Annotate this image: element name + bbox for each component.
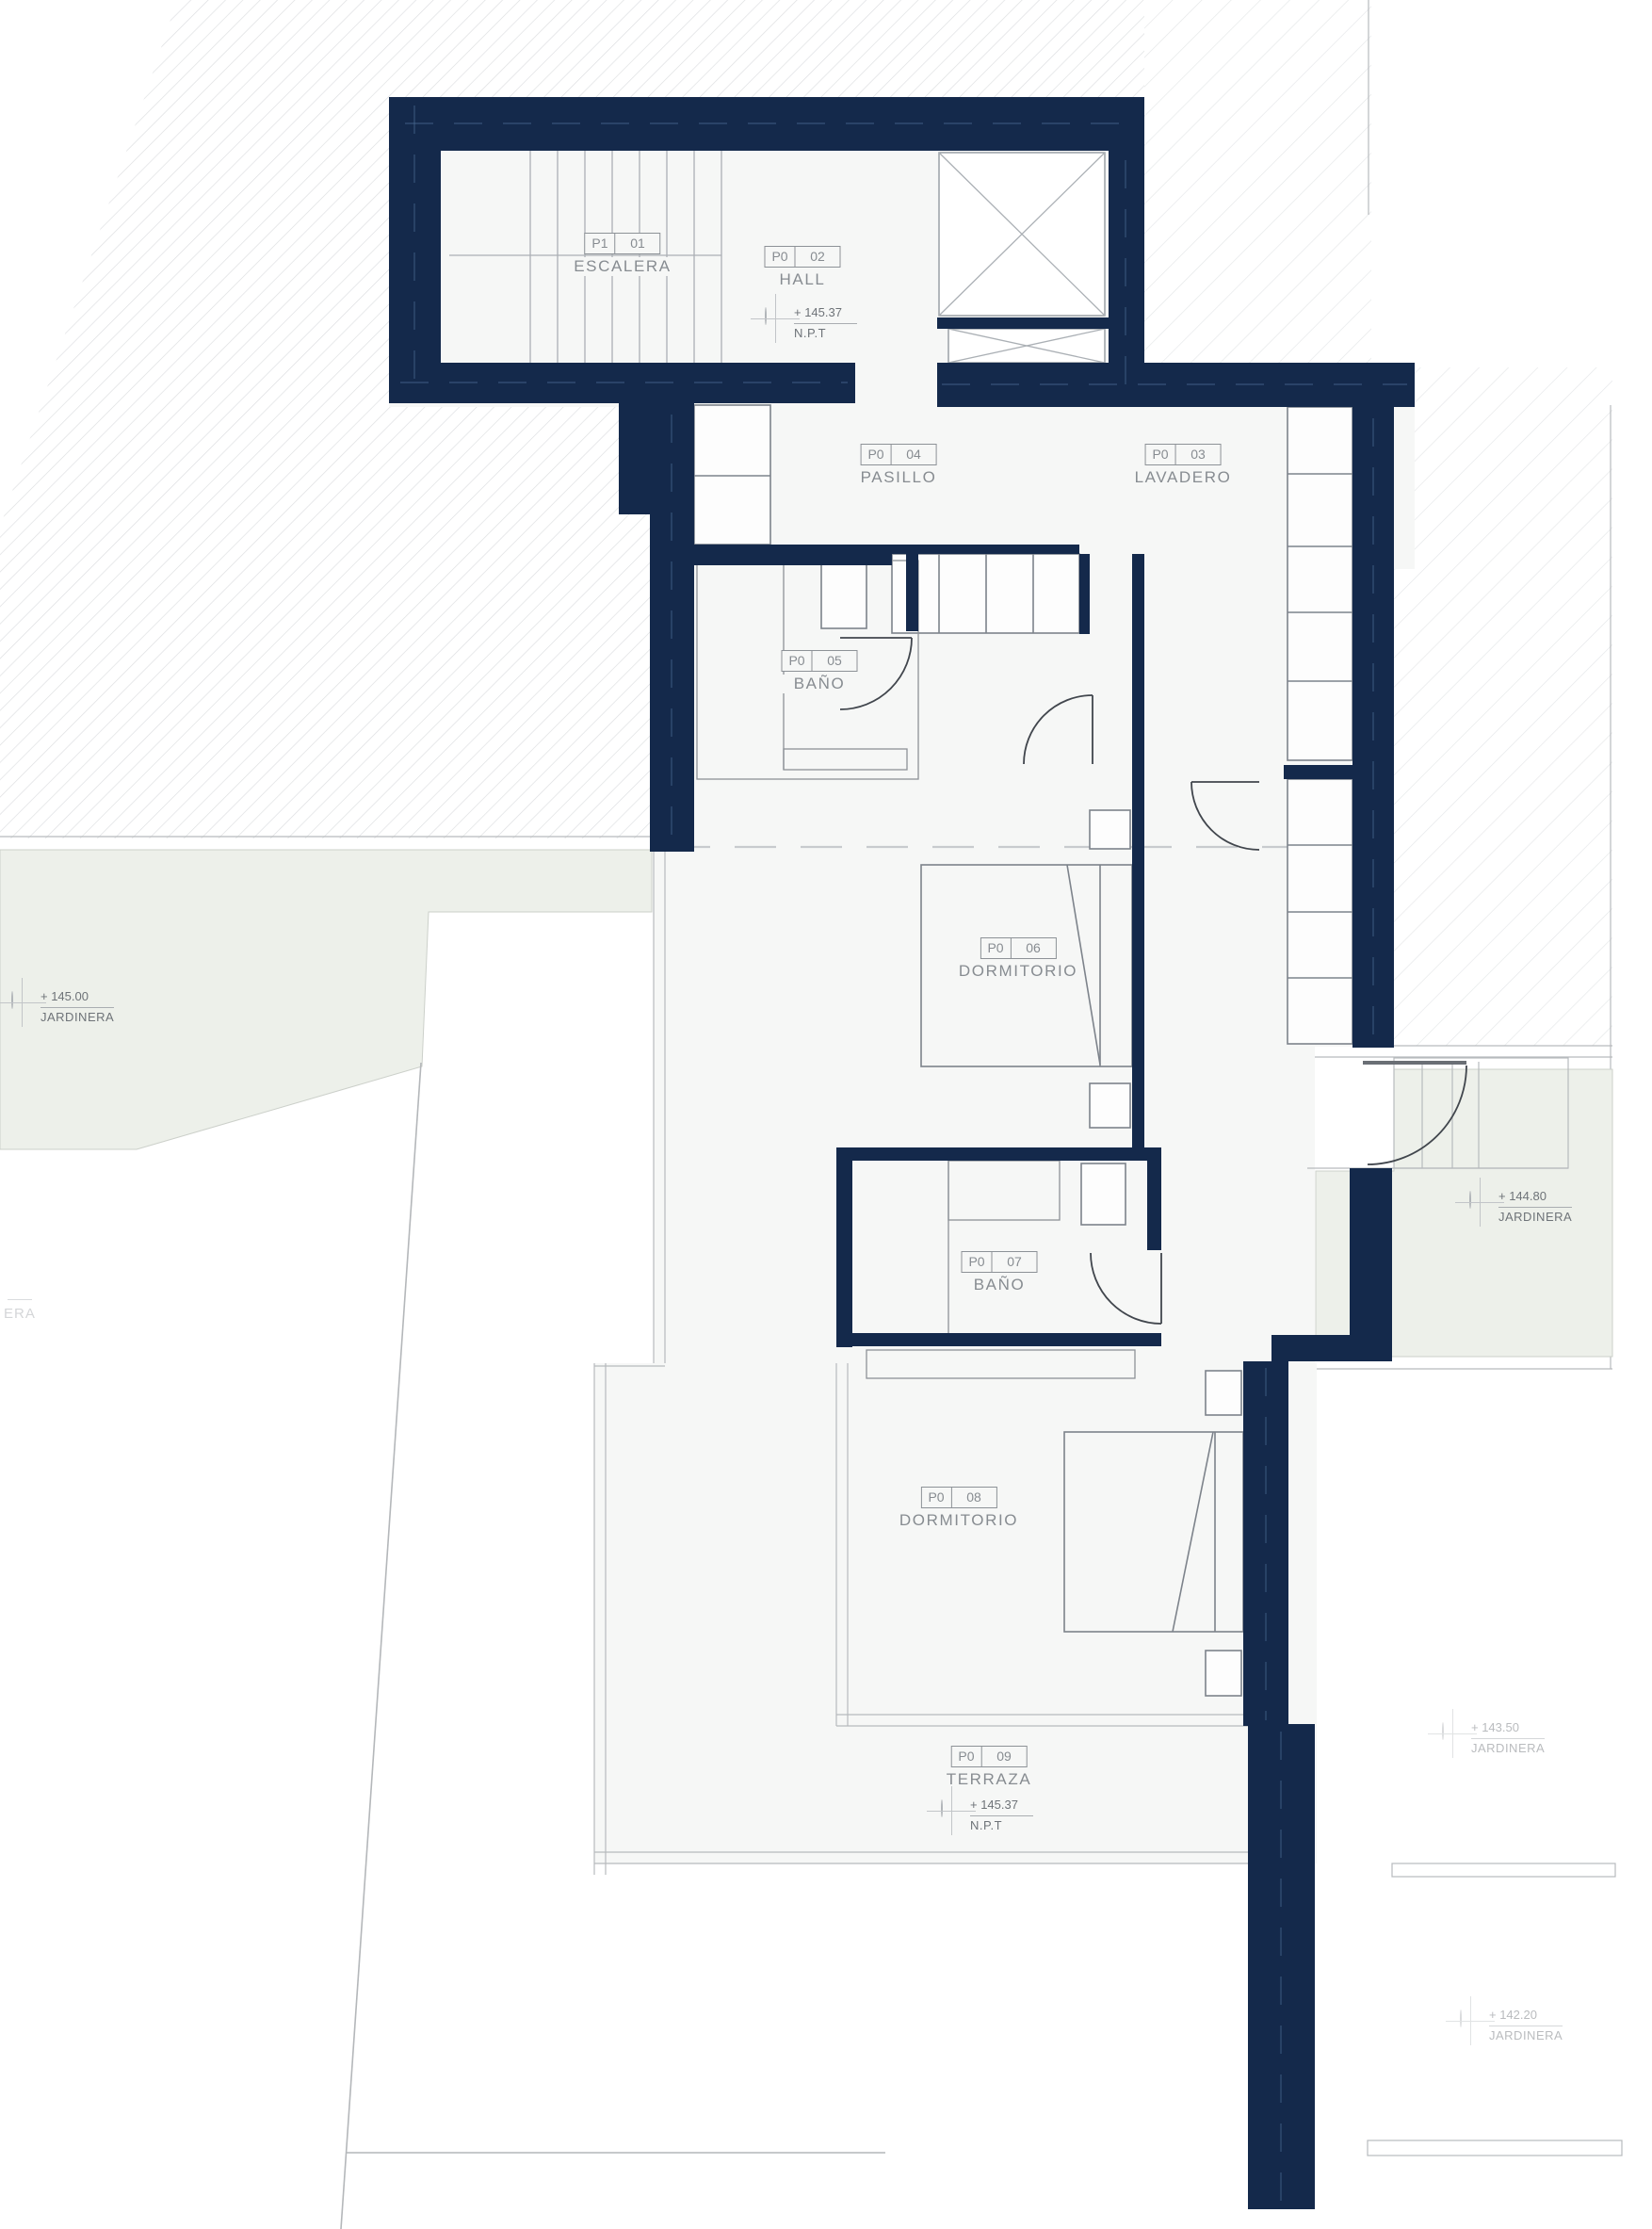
level-symbol-icon <box>765 308 786 329</box>
clipped-jardinera-label: ERA <box>4 1306 36 1322</box>
planter-wall-band <box>1392 1863 1615 1877</box>
level-marker-hall: + 145.37N.P.T <box>765 305 857 342</box>
floor-plan-canvas: P101 ESCALERA P002 HALL P004 PASILLO P00… <box>0 0 1652 2229</box>
room-label-bano05: P005 BAÑO <box>782 650 858 693</box>
level-marker-garden-se-upper: + 143.50JARDINERA <box>1442 1720 1545 1757</box>
room-name: ESCALERA <box>571 257 674 276</box>
room-name: LAVADERO <box>1132 468 1235 487</box>
room-tag: P003 <box>1145 444 1222 465</box>
room-label-dormitorio06: P006 DORMITORIO <box>956 937 1080 981</box>
closet-north-dormitorio06 <box>892 554 1079 633</box>
room-tag: P004 <box>861 444 937 465</box>
room-name: BAÑO <box>962 1276 1038 1294</box>
room-tag: P008 <box>921 1487 997 1508</box>
room-label-pasillo: P004 PASILLO <box>858 444 940 487</box>
site-boundary-line <box>341 1063 421 2229</box>
room-label-lavadero: P003 LAVADERO <box>1132 444 1235 487</box>
level-symbol-icon <box>1460 2010 1481 2031</box>
room-name: DORMITORIO <box>956 962 1080 981</box>
level-marker-garden-se-lower: + 142.20JARDINERA <box>1460 2008 1563 2044</box>
room-name: PASILLO <box>858 468 940 487</box>
level-marker-terraza: + 145.37N.P.T <box>941 1798 1033 1834</box>
level-symbol-icon <box>1442 1723 1463 1744</box>
room-name: HALL <box>765 270 841 289</box>
room-label-dormitorio08: P008 DORMITORIO <box>897 1487 1021 1530</box>
room-tag: P007 <box>962 1251 1038 1273</box>
room-label-bano07: P007 BAÑO <box>962 1251 1038 1294</box>
room-tag: P005 <box>782 650 858 672</box>
room-name: BAÑO <box>782 675 858 693</box>
closet-west <box>694 405 770 545</box>
room-tag: P002 <box>765 246 841 268</box>
level-marker-garden-east: + 144.80JARDINERA <box>1469 1189 1572 1226</box>
room-name: DORMITORIO <box>897 1511 1021 1530</box>
room-tag: P006 <box>980 937 1057 959</box>
room-tag: P101 <box>584 233 660 254</box>
level-marker-garden-west: + 145.00JARDINERA <box>11 989 114 1026</box>
elevator-shaft <box>939 153 1105 363</box>
room-name: TERRAZA <box>944 1770 1035 1789</box>
cabinet-column-east <box>1288 407 1352 1044</box>
room-label-terraza: P009 TERRAZA <box>944 1746 1035 1789</box>
room-label-hall: P002 HALL <box>765 246 841 289</box>
room-label-escalera: P101 ESCALERA <box>571 233 674 276</box>
level-symbol-icon <box>1469 1192 1490 1212</box>
level-symbol-icon <box>11 992 32 1013</box>
level-symbol-icon <box>941 1800 962 1821</box>
planter-wall-band <box>1368 2140 1622 2156</box>
room-tag: P009 <box>950 1746 1027 1767</box>
